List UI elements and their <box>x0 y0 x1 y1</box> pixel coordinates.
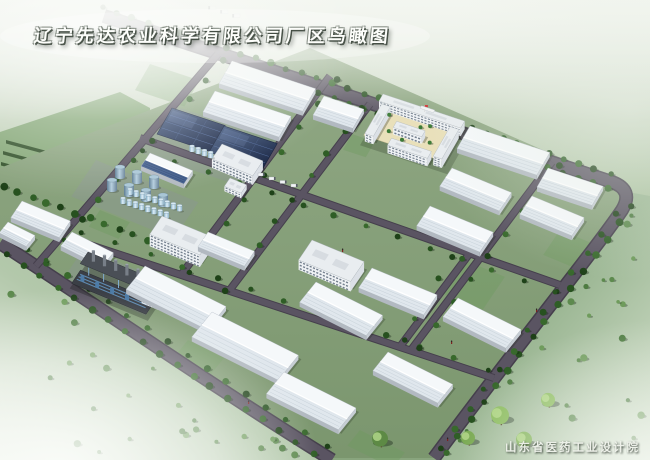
image-title: 辽宁先达农业科学有限公司厂区鸟瞰图 <box>33 22 393 48</box>
tank-top <box>139 203 144 205</box>
tree <box>4 251 10 257</box>
tree <box>325 444 330 449</box>
tower <box>92 251 95 262</box>
tree <box>395 234 401 240</box>
tank-top <box>158 209 163 211</box>
tower <box>103 255 106 266</box>
tree <box>71 210 79 218</box>
tree <box>272 218 278 224</box>
pedestrian-head <box>342 249 343 250</box>
tower-top <box>103 255 106 256</box>
tree <box>112 240 117 245</box>
tank-base <box>158 203 163 205</box>
pedestrian <box>451 342 452 344</box>
tree <box>117 226 124 233</box>
big-tree-highlight <box>373 432 382 441</box>
tree <box>79 230 84 235</box>
tree <box>567 285 574 292</box>
tank-top <box>171 202 176 204</box>
tree <box>451 355 457 361</box>
tree <box>554 301 561 308</box>
tower <box>114 260 117 271</box>
pedestrian <box>447 439 448 441</box>
tank-base <box>139 208 144 210</box>
pedestrian <box>342 250 343 252</box>
tank-base <box>177 209 182 211</box>
tank-base <box>151 212 156 214</box>
pedestrian-head <box>447 438 448 439</box>
tree <box>587 314 591 318</box>
tree <box>215 275 221 281</box>
tree <box>149 252 154 257</box>
tower-top <box>125 264 128 265</box>
tree <box>64 272 71 279</box>
tree <box>412 316 417 321</box>
birdseye-rendering: 辽宁先达农业科学有限公司厂区鸟瞰图 山东省医药工业设计院 <box>0 0 650 460</box>
tank-base <box>152 201 157 203</box>
pedestrian <box>536 310 537 312</box>
tree <box>257 242 263 248</box>
tree <box>402 337 407 342</box>
tree <box>454 433 461 440</box>
tree <box>101 221 108 228</box>
tank-top <box>177 204 182 206</box>
blue-equipment <box>95 282 99 288</box>
scene-canvas <box>0 0 650 460</box>
tank-base <box>171 207 176 209</box>
tree <box>36 273 42 279</box>
pedestrian-head <box>536 309 537 310</box>
tree <box>383 332 389 338</box>
tree <box>224 221 230 227</box>
tower-top <box>114 259 117 260</box>
mist-bottom-left <box>0 290 320 460</box>
tree <box>129 231 135 237</box>
tree <box>44 258 49 263</box>
tree <box>568 298 575 305</box>
tree <box>416 345 422 351</box>
pedestrian-head <box>451 341 452 342</box>
tank-top <box>165 200 170 202</box>
tank-base <box>133 206 138 208</box>
tree <box>21 262 28 269</box>
tree <box>540 309 547 316</box>
tree <box>57 204 64 211</box>
tree <box>364 224 369 229</box>
tree <box>616 300 620 304</box>
tree <box>187 270 192 275</box>
tree <box>79 216 86 223</box>
tree <box>42 199 50 207</box>
tank-base <box>127 204 132 206</box>
tank-base <box>145 210 150 212</box>
blue-equipment <box>80 276 84 282</box>
tree <box>387 129 391 133</box>
tree <box>400 138 404 142</box>
tank-base <box>120 202 125 204</box>
tree <box>452 426 459 433</box>
tree <box>620 301 626 307</box>
tower-top <box>92 250 95 251</box>
tank-base <box>165 205 170 207</box>
mist-top-right <box>420 0 650 280</box>
tower-top <box>136 268 139 269</box>
tree <box>553 290 558 295</box>
tank-top <box>164 211 169 213</box>
tank-top <box>151 207 156 209</box>
tree <box>438 446 444 452</box>
tree <box>583 284 588 289</box>
tree <box>179 264 185 270</box>
tree <box>433 322 439 328</box>
tree <box>301 203 307 209</box>
tree <box>87 214 94 221</box>
designer-watermark: 山东省医药工业设计院 <box>505 439 640 455</box>
tank-top <box>133 201 138 203</box>
tree <box>330 212 336 218</box>
tower <box>125 265 128 276</box>
tank-top <box>145 205 150 207</box>
